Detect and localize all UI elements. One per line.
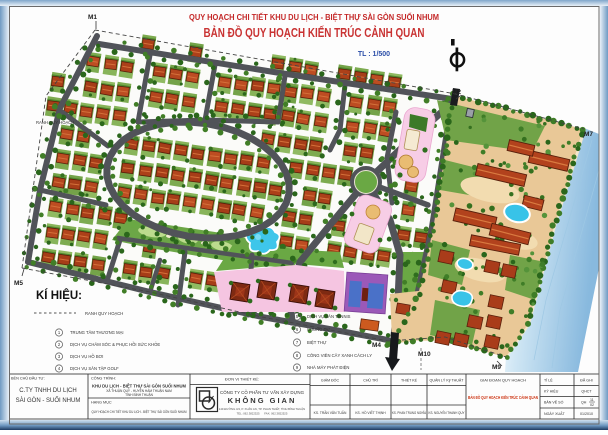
svg-text:NGÀY XUẤT: NGÀY XUẤT [544, 412, 566, 416]
svg-text:BẢN ĐỒ QUY HOẠCH KIẾN TRÚC CẢN: BẢN ĐỒ QUY HOẠCH KIẾN TRÚC CẢNH QUAN [204, 25, 425, 40]
svg-text:KHÔNG GIAN: KHÔNG GIAN [228, 396, 297, 405]
svg-text:DỊCH VỤ SÂN TENNIS: DỊCH VỤ SÂN TENNIS [307, 314, 351, 319]
svg-text:CÔNG TY CỖ PHẦN TƯ VẤN XÂY DỰN: CÔNG TY CỖ PHẦN TƯ VẤN XÂY DỰNG [220, 389, 304, 395]
svg-text:TỈ LỆ: TỈ LỆ [544, 378, 553, 383]
svg-text:SÀI GÒN - SUỐI NHUM: SÀI GÒN - SUỐI NHUM [16, 397, 81, 404]
svg-text:TEL: 062.3822525 FAX: 062: TEL: 062.3822525 FAX: 062.3822525 [237, 412, 288, 416]
svg-text:M9: M9 [492, 364, 501, 371]
svg-text:GIAI ĐOẠN QUY HOẠCH: GIAI ĐOẠN QUY HOẠCH [480, 378, 526, 383]
svg-text:M7: M7 [584, 131, 593, 138]
svg-text:KS. HỒ VIẾT THỊNH: KS. HỒ VIẾT THỊNH [355, 410, 386, 415]
svg-text:QUY HOẠCH CHI TIẾT KHU DU LỊCH: QUY HOẠCH CHI TIẾT KHU DU LỊCH - BIỆT TH… [189, 12, 439, 22]
svg-text:M4: M4 [372, 342, 381, 349]
svg-text:KS. PHAN TRUNG NGHĨA: KS. PHAN TRUNG NGHĨA [392, 410, 427, 415]
svg-text:TRUNG TÂM THƯƠNG MẠI: TRUNG TÂM THƯƠNG MẠI [70, 330, 124, 335]
svg-text:CHUNG CƯ: CHUNG CƯ [307, 327, 331, 332]
svg-text:THIẾT KẾ: THIẾT KẾ [401, 378, 418, 383]
svg-text:DỊCH VỤ CHĂM SÓC & PHỤC HỒI SỨ: DỊCH VỤ CHĂM SÓC & PHỤC HỒI SỨC KHỎE [70, 342, 160, 347]
svg-text:02: 02 [590, 403, 594, 407]
svg-text:NHÀ MÁY PHÁT ĐIỆN: NHÀ MÁY PHÁT ĐIỆN [307, 365, 349, 370]
svg-text:CÔNG VIÊN CÂY XANH CÁCH LY: CÔNG VIÊN CÂY XANH CÁCH LY [307, 353, 372, 358]
svg-text:11: 11 [590, 398, 594, 402]
svg-text:QUẢN LÝ Kỹ THUẬT: QUẢN LÝ Kỹ THUẬT [430, 378, 465, 383]
svg-text:QUY HOẠCH CHI TIẾT KHU DU LỊCH: QUY HOẠCH CHI TIẾT KHU DU LỊCH - BIỆT TH… [92, 409, 187, 414]
svg-text:QHCT: QHCT [581, 390, 592, 394]
svg-text:BÊN CHỦ ĐẦU TƯ:: BÊN CHỦ ĐẦU TƯ: [11, 376, 45, 381]
svg-text:ĐÃ GHI: ĐÃ GHI [580, 378, 592, 383]
svg-text:M10: M10 [418, 351, 431, 358]
svg-text:KÝ HIỆU: KÝ HIỆU [544, 389, 559, 394]
svg-text:GIÁM ĐỐC: GIÁM ĐỐC [321, 378, 340, 383]
svg-text:DỊCH VỤ HỒ BƠI: DỊCH VỤ HỒ BƠI [70, 354, 103, 359]
svg-text:M5: M5 [14, 280, 23, 287]
svg-text:CÔNG TRÌNH:: CÔNG TRÌNH: [91, 376, 116, 381]
svg-text:TỈNH BÌNH THUẬN: TỈNH BÌNH THUẬN [125, 392, 153, 397]
svg-text:DỊCH VỤ SÂN TẬP GOLF: DỊCH VỤ SÂN TẬP GOLF [70, 366, 119, 371]
svg-text:BIỆT THỰ: BIỆT THỰ [307, 340, 327, 345]
svg-text:M2: M2 [452, 89, 461, 96]
svg-text:HẠNG MỤC: HẠNG MỤC [91, 401, 112, 405]
svg-text:TL : 1/500: TL : 1/500 [358, 51, 390, 58]
svg-text:KS. NGUYỄN THANH QUY: KS. NGUYỄN THANH QUY [429, 410, 466, 415]
svg-text:RANH QUY HOẠCH: RANH QUY HOẠCH [36, 120, 74, 125]
svg-text:01/2010: 01/2010 [580, 412, 593, 416]
svg-text:C.TY TNHH DU LỊCH: C.TY TNHH DU LỊCH [19, 388, 76, 394]
svg-text:M1: M1 [88, 14, 97, 21]
svg-text:CHỦ TRÌ: CHỦ TRÌ [363, 378, 378, 383]
svg-text:BẢN ĐỒ QUY HOẠCH KIẾN TRÚC CẢN: BẢN ĐỒ QUY HOẠCH KIẾN TRÚC CẢNH QUAN [468, 395, 538, 400]
svg-text:KHU DU LỊCH - BIỆT THỰ SÀI GÒN: KHU DU LỊCH - BIỆT THỰ SÀI GÒN SUỐI NHUM [92, 384, 186, 389]
svg-text:149 ĐƯỜNG 3/4, P. XUÂN AN, TP.: 149 ĐƯỜNG 3/4, P. XUÂN AN, TP. PHAN THIẾ… [219, 406, 305, 411]
svg-text:ĐƠN VỊ THIẾT KẾ:: ĐƠN VỊ THIẾT KẾ: [225, 377, 259, 382]
svg-text:KS. TRẦN VĂN TUẤN: KS. TRẦN VĂN TUẤN [314, 411, 347, 415]
svg-text:BẢN VẼ SỐ: BẢN VẼ SỐ [544, 400, 564, 405]
svg-text:QH: QH [581, 401, 587, 405]
svg-text:KÍ HIỆU:: KÍ HIỆU: [36, 289, 82, 302]
svg-text:RANH QUY HOẠCH: RANH QUY HOẠCH [85, 311, 123, 316]
